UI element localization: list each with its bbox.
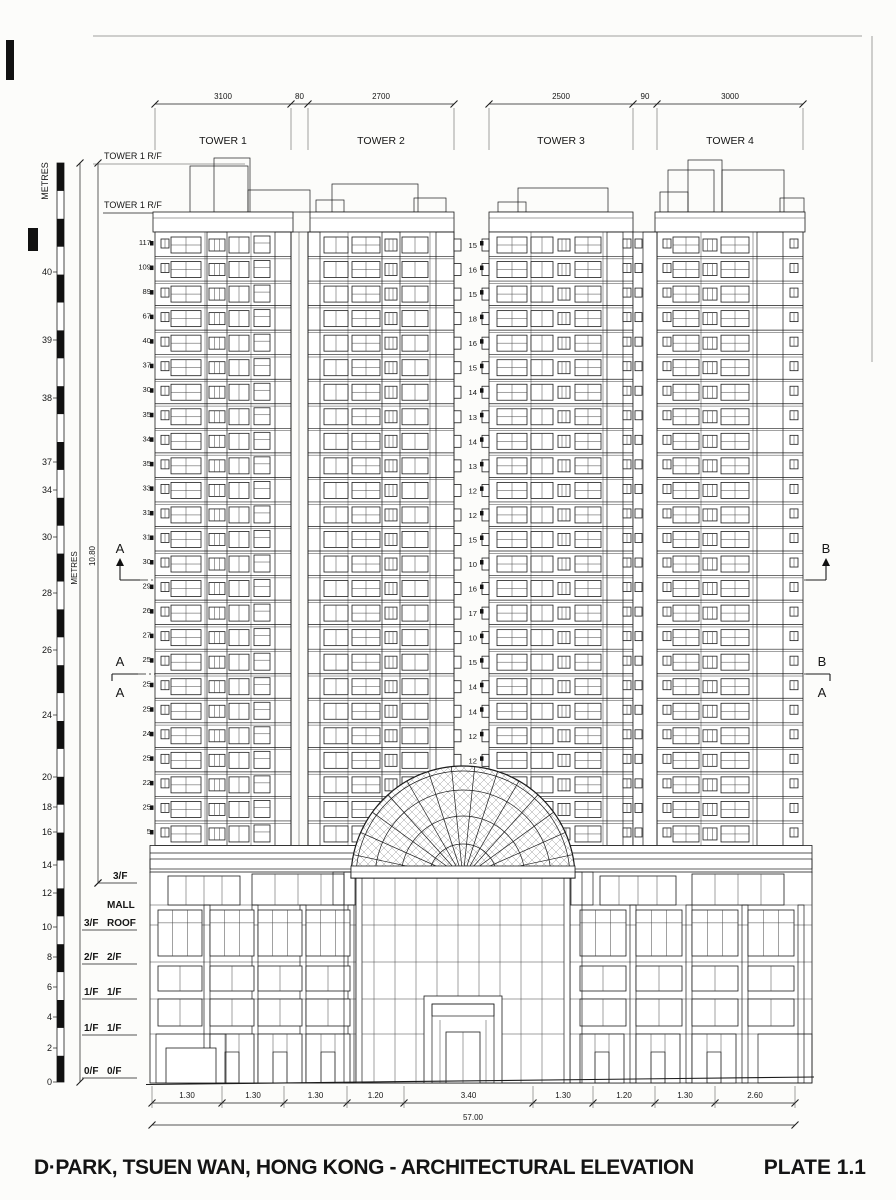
elevation-drawing: 31008027002500903000TOWER 1TOWER 2TOWER … (0, 0, 896, 1146)
floor-label: ROOF (107, 918, 136, 929)
floor-label: 3/F (113, 871, 127, 882)
roof-structure (190, 166, 248, 212)
floor-dim-label: 26 (143, 606, 151, 615)
floor-dim-label: 27 (143, 631, 151, 640)
roof-structure (780, 198, 804, 212)
floor-dim-label: 25 (143, 704, 151, 713)
roof-structure (414, 198, 446, 212)
scale-tick-label: 8 (47, 952, 52, 962)
floor-label: 1/F (84, 1023, 98, 1034)
storefront (636, 1034, 680, 1083)
tower-parapet (153, 212, 293, 232)
podium-window (258, 910, 302, 956)
storefront (258, 1034, 302, 1083)
storefront (692, 1034, 736, 1083)
scale-tick-label: 20 (42, 772, 52, 782)
bottom-dimensions: 1.301.301.301.203.401.301.201.302.6057.0… (149, 1086, 799, 1129)
floor-dim-label: 15 (469, 535, 477, 544)
floor-dim-label: 14 (469, 388, 477, 397)
floor-dim-label: 67 (143, 312, 151, 321)
floor-label: MALL (107, 900, 135, 911)
bottom-dimension-label: 1.30 (245, 1091, 261, 1100)
floor-dim-label: 31 (143, 508, 151, 517)
tower-parapet (489, 212, 633, 232)
podium-window (210, 910, 254, 956)
floor-dim-label: 35 (143, 410, 151, 419)
floor-dim-label: 25 (143, 655, 151, 664)
plate-number: PLATE 1.1 (764, 1156, 866, 1180)
gap-strip (633, 232, 657, 846)
floor-dim-label: 40 (143, 336, 151, 345)
floor-dim-label: 15 (469, 364, 477, 373)
scale-tick-label: 28 (42, 588, 52, 598)
scale-tick-label: 12 (42, 888, 52, 898)
storefront (306, 1034, 350, 1083)
floor-label: 2/F (84, 952, 98, 963)
metres-dim-label: METRES (70, 551, 79, 584)
floor-dim-label: 17 (469, 609, 477, 618)
curtain-wall (344, 872, 582, 1083)
floor-label: 1/F (107, 1023, 121, 1034)
floor-dim-label: 22 (143, 778, 151, 787)
floor-label: 2/F (107, 952, 121, 963)
tower-1 (150, 232, 291, 846)
top-dimension-label: 2700 (372, 92, 390, 101)
tower-name-label: TOWER 4 (706, 135, 754, 147)
floor-dim-label: 109 (138, 263, 151, 272)
tower-4 (657, 232, 803, 846)
total-dimension-label: 57.00 (463, 1113, 484, 1122)
roof-structure (518, 188, 608, 212)
section-marker-letter: A (818, 685, 827, 700)
bottom-dimension-label: 2.60 (747, 1091, 763, 1100)
floor-dim-label: 33 (143, 483, 151, 492)
podium-window (748, 910, 794, 956)
roof-structure (332, 184, 418, 212)
section-marker-letter: B (818, 654, 827, 669)
floor-dim-label: 14 (469, 707, 477, 716)
top-dimension-label: 80 (295, 92, 304, 101)
podium-window (158, 910, 202, 956)
bottom-dimension-label: 1.20 (616, 1091, 632, 1100)
storefront (580, 1034, 624, 1083)
scale-tick-label: 4 (47, 1012, 52, 1022)
scale-tick-label: 14 (42, 860, 52, 870)
floor-dim-label: 25 (143, 753, 151, 762)
floor-dim-label: 12 (469, 486, 477, 495)
roof-structure (668, 170, 714, 212)
floor-dim-label: 16 (469, 339, 477, 348)
bottom-dimension-label: 1.30 (308, 1091, 324, 1100)
roof-structure (722, 170, 784, 212)
floor-dim-label: 30 (143, 557, 151, 566)
bottom-dimension-label: 1.30 (555, 1091, 571, 1100)
section-marker-letter: A (116, 541, 125, 556)
top-dimensions: 31008027002500903000TOWER 1TOWER 2TOWER … (152, 92, 807, 150)
floor-dim-label: 31 (143, 532, 151, 541)
floor-dim-label: 24 (143, 729, 151, 738)
floor-dim-label: 13 (469, 413, 477, 422)
top-dimension-label: 90 (641, 92, 650, 101)
floor-dim-label: 14 (469, 683, 477, 692)
garage-door (166, 1048, 216, 1083)
floor-dim-label: 25 (143, 802, 151, 811)
height-dimension-label: 10.80 (88, 545, 97, 566)
floor-dim-label: 12 (469, 732, 477, 741)
roof-structure (498, 202, 526, 212)
podium-window (580, 910, 626, 956)
title-bar: D·PARK, TSUEN WAN, HONG KONG - ARCHITECT… (0, 1146, 896, 1190)
bottom-dimension-label: 3.40 (461, 1091, 477, 1100)
floor-dim-label: 37 (143, 361, 151, 370)
tower-3 (480, 232, 633, 846)
floor-dim-label: 13 (469, 462, 477, 471)
section-marker-letter: A (116, 685, 125, 700)
floor-dim-label: 10 (469, 634, 477, 643)
scale-tick-label: 24 (42, 710, 52, 720)
metres-label: METRES (40, 162, 50, 200)
tower-name-label: TOWER 1 (199, 135, 247, 147)
scale-tick-label: 0 (47, 1077, 52, 1087)
floor-label: 3/F (84, 918, 98, 929)
floor-dim-label: 15 (469, 241, 477, 250)
floor-dim-label: 15 (469, 658, 477, 667)
podium-floor-labels: 3/FMALL3/FROOF2/F2/F1/F1/F1/F1/F0/F0/F (82, 871, 137, 1078)
floor-label: 0/F (84, 1066, 98, 1077)
floor-dim-label: 14 (469, 437, 477, 446)
floor-dim-label: 34 (143, 434, 151, 443)
section-marker-letter: B (822, 541, 831, 556)
scale-tick-label: 2 (47, 1043, 52, 1053)
scale-tick-label: 26 (42, 645, 52, 655)
floor-dim-label: 10 (469, 560, 477, 569)
roof-structure (688, 160, 722, 212)
drawing-page: 31008027002500903000TOWER 1TOWER 2TOWER … (0, 0, 896, 1200)
scale-tick-label: 37 (42, 457, 52, 467)
tower-2 (308, 232, 461, 846)
building (150, 158, 805, 846)
tower-name-label: TOWER 2 (357, 135, 405, 147)
floor-label: 0/F (107, 1066, 121, 1077)
scale-tick-label: 39 (42, 335, 52, 345)
floor-dim-label: 35 (143, 459, 151, 468)
scale-tick-label: 16 (42, 827, 52, 837)
drawing-title: D·PARK, TSUEN WAN, HONG KONG - ARCHITECT… (34, 1156, 694, 1180)
roof-structure (248, 190, 310, 212)
section-marker-letter: A (116, 654, 125, 669)
floor-dim-label: 15 (469, 290, 477, 299)
floor-label: 1/F (107, 987, 121, 998)
top-dimension-label: 2500 (552, 92, 570, 101)
bottom-dimension-label: 1.20 (368, 1091, 384, 1100)
floor-dim-label: 29 (143, 582, 151, 591)
floor-dim-label: 117 (139, 238, 151, 247)
top-dimension-label: 3100 (214, 92, 232, 101)
scale-tick-label: 18 (42, 802, 52, 812)
scale-tick-label: 30 (42, 532, 52, 542)
scale-tick-label: 38 (42, 393, 52, 403)
floor-dim-label: 16 (469, 266, 477, 275)
roof-structure (660, 192, 688, 212)
scale-tick-label: 34 (42, 485, 52, 495)
tower-name-label: TOWER 3 (537, 135, 585, 147)
podium-window (306, 910, 350, 956)
floor-dim-label: 89 (143, 287, 151, 296)
tower-parapet (655, 212, 805, 232)
page-mark (28, 228, 38, 251)
floor-dim-label: 30 (143, 385, 151, 394)
floor-dim-label: 12 (469, 511, 477, 520)
floor-label: 1/F (84, 987, 98, 998)
floor-dim-label: 16 (469, 585, 477, 594)
scale-tick-label: 40 (42, 267, 52, 277)
roof-level-label: TOWER 1 R/F (104, 200, 162, 210)
bottom-dimension-label: 1.30 (179, 1091, 195, 1100)
scale-tick-label: 6 (47, 982, 52, 992)
top-dimension-label: 3000 (721, 92, 739, 101)
scale-tick-label: 10 (42, 922, 52, 932)
bottom-dimension-label: 1.30 (677, 1091, 693, 1100)
podium-window (692, 910, 738, 956)
floor-dim-label: 25 (143, 680, 151, 689)
floor-dim-label: 18 (469, 315, 477, 324)
podium-window (636, 910, 682, 956)
floor-dim-label: 12 (469, 756, 477, 765)
tower-parapet (310, 212, 454, 232)
roof-structure (316, 200, 344, 212)
page-mark (6, 40, 14, 80)
roof-level-label: TOWER 1 R/F (104, 151, 162, 161)
storefront (210, 1034, 254, 1083)
floor-dim-label: 5 (147, 827, 151, 836)
